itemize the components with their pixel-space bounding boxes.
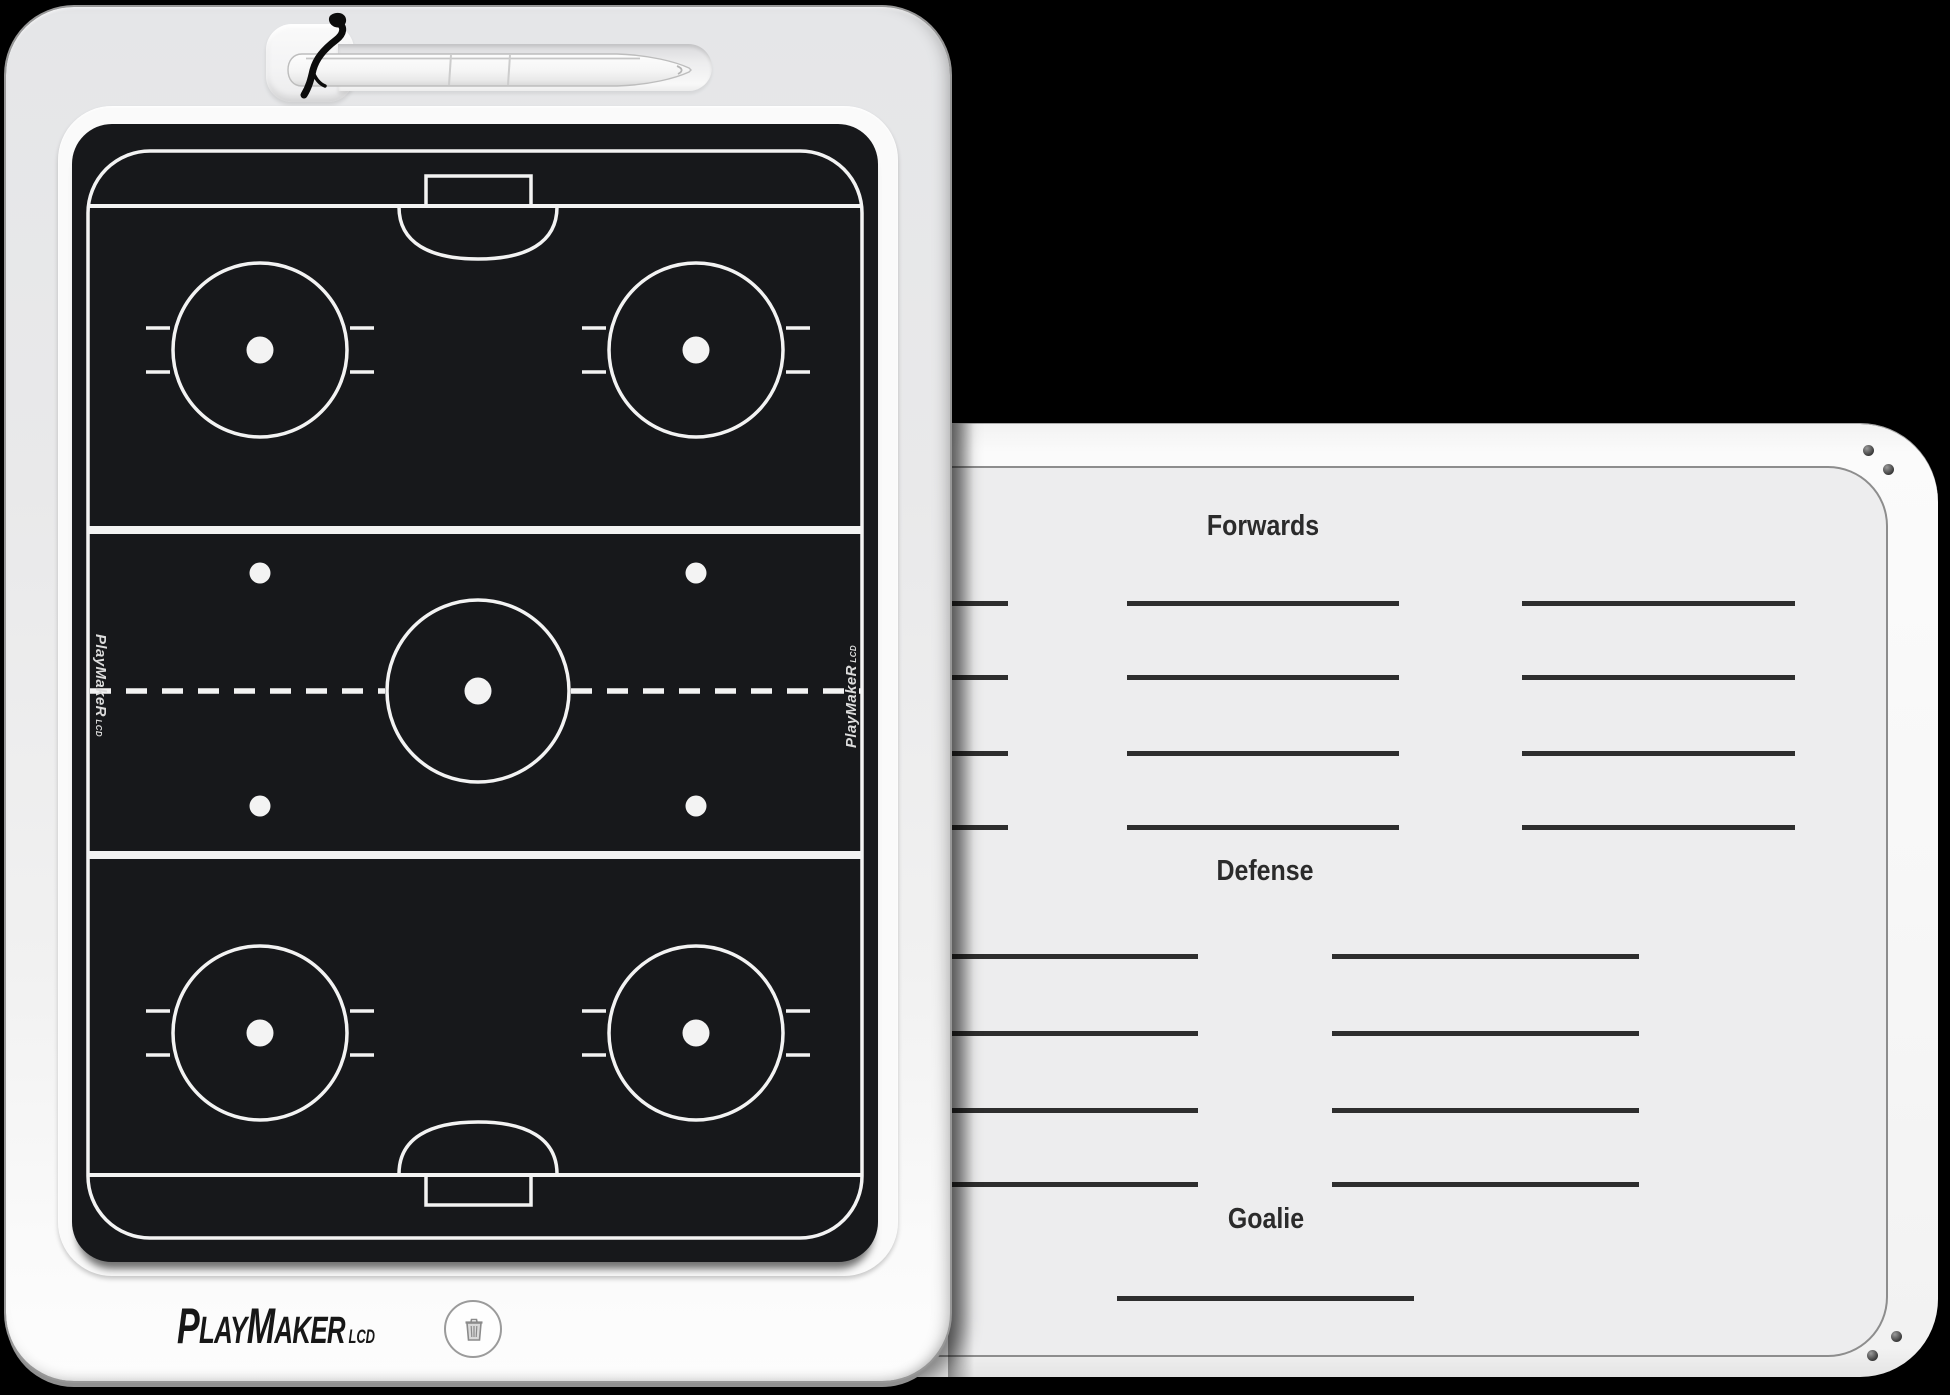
svg-text:PlayMakeR LCD: PlayMakeR LCD [92, 634, 109, 737]
svg-text:PlayMakeR LCD: PlayMakeR LCD [843, 645, 860, 748]
